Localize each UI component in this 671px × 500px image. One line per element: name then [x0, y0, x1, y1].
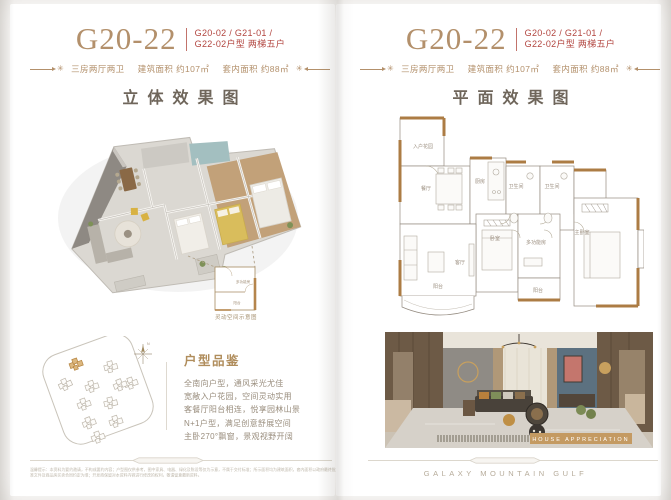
room-label-living: 客厅 [455, 259, 465, 266]
spec-rooms: 三房两厅两卫 [401, 63, 454, 75]
spec-area: 建筑面积 约107㎡ [138, 63, 210, 75]
compass-n-label: N [147, 342, 150, 346]
right-edge-shadow [657, 0, 671, 500]
spec-inner-area: 套内面积 约88㎡ [552, 63, 618, 75]
left-edge-shadow [0, 0, 14, 500]
right-unit-header: G20-22 G20-02 / G21-01 / G22-02户型 两梯五户 [368, 24, 653, 54]
room-label-kitchen: 厨房 [475, 178, 485, 185]
flourish-left-icon: ✳ [360, 65, 395, 73]
review-divider [166, 362, 167, 430]
room-label-balcony-side: 阳台 [533, 287, 543, 294]
room-label-multi: 多功能房 [526, 239, 546, 246]
review-line: 主卧270°飘窗，景观视野开阔 [184, 430, 326, 443]
room-label-master: 主卧室 [574, 229, 589, 236]
unit-codes-line2: G22-02户型 两梯五户 [525, 39, 615, 51]
review-line: N+1户型，满足创意舒展空间 [184, 417, 326, 430]
unit-model: G20-22 [76, 24, 177, 54]
flex-space-inset-plan: 多功能房 阳台 [213, 266, 259, 312]
site-plan: N [35, 336, 175, 456]
review-line: 宽敞入户花园，空间灵动实用 [184, 390, 326, 403]
footer-diamond-icon [133, 457, 203, 464]
photo-banner-label: HOUSE APPRECIATION [532, 437, 629, 443]
inset-room-bottom-label: 阳台 [233, 300, 241, 305]
review-line: 客餐厅阳台相连，悦享园林山景 [184, 403, 326, 416]
flourish-right-icon: ✳ [625, 65, 660, 73]
room-label-bath1: 卫生间 [508, 183, 523, 190]
3d-unit-body [52, 110, 308, 309]
unit-codes-line1: G20-02 / G21-01 / [195, 28, 285, 40]
legal-disclaimer: 温馨提示：本资料为要约邀请，不构成要约内容；户型图仅供参考，图中家具、电器、绿化… [30, 468, 336, 479]
left-spec-row: ✳ 三房两厅两卫 建筑面积 约107㎡ 套内面积 约88㎡ ✳ [30, 63, 330, 75]
brochure-spread: G20-22 G20-02 / G21-01 / G22-02户型 两梯五户 ✳… [0, 0, 671, 500]
flourish-right-icon: ✳ [295, 65, 330, 73]
unit-codes-line2: G22-02户型 两梯五户 [195, 39, 285, 51]
spec-inner-area: 套内面积 约88㎡ [222, 63, 288, 75]
2d-floorplan: 入户花园 餐厅 厨房 卫生间 卫生间 客厅 卧室 多功能房 主卧室 阳台 阳台 [392, 110, 644, 322]
left-section-title: 立体效果图 [38, 84, 323, 108]
review-title: 户型品鉴 [184, 350, 326, 369]
footer-brand: GALAXY MOUNTAIN GULF [398, 469, 613, 478]
left-unit-header: G20-22 G20-02 / G21-01 / G22-02户型 两梯五户 [38, 24, 323, 54]
room-label-bath2: 卫生间 [544, 183, 559, 190]
flourish-left-icon: ✳ [30, 65, 65, 73]
unit-codes-line1: G20-02 / G21-01 / [525, 28, 615, 40]
3d-floorplan-render [38, 106, 318, 334]
inset-room-top-label: 多功能房 [236, 279, 251, 284]
room-label-dining: 餐厅 [421, 185, 431, 192]
room-label-balcony-main: 阳台 [433, 283, 443, 290]
unit-model: G20-22 [406, 24, 507, 54]
unit-codes: G20-02 / G21-01 / G22-02户型 两梯五户 [516, 28, 615, 51]
inset-caption: 灵动空间示意图 [193, 313, 279, 321]
unit-codes: G20-02 / G21-01 / G22-02户型 两梯五户 [186, 28, 285, 51]
right-spec-row: ✳ 三房两厅两卫 建筑面积 约107㎡ 套内面积 约88㎡ ✳ [360, 63, 660, 75]
interior-photo: HOUSE APPRECIATION [385, 332, 653, 448]
unit-review: 户型品鉴 全南向户型，通风采光尤佳 宽敞入户花园，空间灵动实用 客餐厅阳台相连，… [184, 350, 326, 443]
right-section-title: 平面效果图 [368, 84, 653, 108]
room-label-bedroom: 卧室 [490, 235, 500, 242]
footer-diamond-icon [470, 457, 540, 464]
review-line: 全南向户型，通风采光尤佳 [184, 377, 326, 390]
room-label-entry: 入户花园 [413, 143, 433, 150]
spec-area: 建筑面积 约107㎡ [468, 63, 540, 75]
spec-rooms: 三房两厅两卫 [71, 63, 124, 75]
